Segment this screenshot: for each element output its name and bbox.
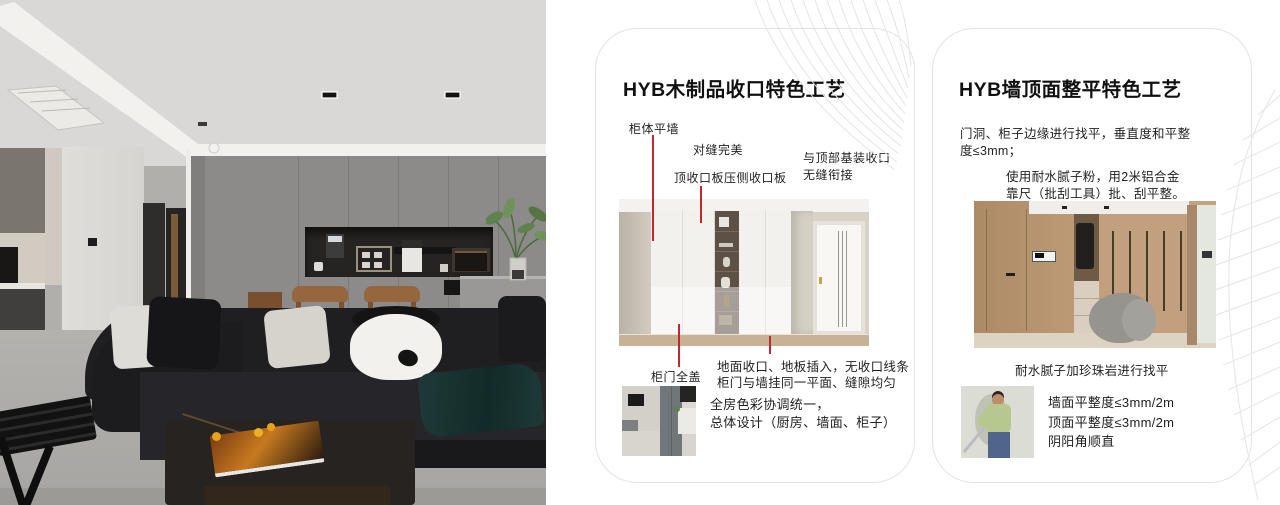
img-right-wall bbox=[791, 211, 813, 334]
callout-top-joint-1: 与顶部基装收口 bbox=[803, 149, 891, 166]
gold-door-handle bbox=[819, 277, 822, 284]
flatness-spec-ceiling: 顶面平整度≤3mm/2m bbox=[1048, 412, 1174, 431]
hall-ceiling bbox=[1029, 201, 1189, 214]
shelf bbox=[715, 231, 739, 232]
callout-top-joint-2: 无缝衔接 bbox=[803, 166, 853, 183]
potted-plant bbox=[486, 198, 546, 288]
doorway-opening bbox=[1197, 205, 1216, 343]
kitchen-base-cabinets bbox=[0, 289, 45, 333]
wall-switch bbox=[88, 238, 97, 246]
ceiling-spot bbox=[1062, 206, 1067, 209]
putty-text-2: 靠尺（批刮工具）批、刮平整。 bbox=[1006, 183, 1185, 202]
drawer-line bbox=[1074, 298, 1099, 299]
door-lever-handle bbox=[1006, 273, 1015, 276]
living-room-photo bbox=[0, 0, 546, 505]
img-left-wall bbox=[619, 212, 651, 334]
ceiling-spot bbox=[1104, 206, 1109, 209]
bean-bag bbox=[1122, 299, 1156, 341]
thumb-hood bbox=[680, 386, 696, 402]
callout-door-cover: 柜门全盖 bbox=[651, 368, 701, 385]
shelf-books bbox=[719, 243, 733, 247]
wall-corner-shadow bbox=[191, 156, 205, 314]
callout-seam: 对缝完美 bbox=[693, 141, 743, 158]
kumquat-fruit bbox=[212, 432, 221, 441]
hidden-door-seam bbox=[986, 209, 987, 331]
kitchen-thumb bbox=[622, 386, 696, 456]
thermostat-screen bbox=[1035, 253, 1044, 258]
rack-cup bbox=[374, 262, 382, 268]
hidden-door-seam bbox=[1026, 209, 1027, 331]
hall-left-wall bbox=[974, 201, 1074, 333]
card-wood-craft: HYB木制品收口特色工艺 柜体平墙 对缝完美 顶收口板压侧收口板 与顶部基装收口… bbox=[595, 28, 915, 483]
hallway-image bbox=[974, 201, 1216, 348]
white-pillow bbox=[263, 305, 331, 369]
page: HYB木制品收口特色工艺 柜体平墙 对缝完美 顶收口板压侧收口板 与顶部基装收口… bbox=[0, 0, 1280, 505]
hanging-clothes bbox=[1076, 223, 1094, 269]
rack-cup bbox=[362, 262, 370, 268]
shelf bbox=[715, 251, 739, 252]
perlite-caption: 耐水腻子加珍珠岩进行找平 bbox=[1015, 360, 1169, 379]
kitchen-wall-column bbox=[45, 148, 62, 285]
dark-pillow bbox=[498, 296, 546, 362]
card-title: HYB木制品收口特色工艺 bbox=[623, 73, 846, 102]
card-wall-craft: HYB墙顶面整平特色工艺 门洞、柜子边缘进行找平，垂直度和平整 度≤3mm； 使… bbox=[932, 28, 1252, 483]
dining-chair bbox=[292, 286, 348, 302]
annotation-line bbox=[652, 135, 654, 241]
ceiling bbox=[0, 0, 546, 166]
shelf-frame bbox=[719, 217, 729, 227]
light-glare bbox=[651, 287, 791, 334]
wardrobe-image bbox=[619, 199, 869, 346]
thumb-tv bbox=[628, 394, 644, 406]
coffee-machine-builtin bbox=[0, 247, 18, 285]
callout-cabinet-wall: 柜体平墙 bbox=[629, 120, 679, 137]
door-groove bbox=[842, 231, 843, 327]
worker-thumb bbox=[961, 386, 1034, 458]
card-title: HYB墙顶面整平特色工艺 bbox=[959, 73, 1182, 102]
black-pillow bbox=[146, 296, 222, 370]
dining-chair bbox=[364, 286, 420, 302]
annotation-line bbox=[700, 186, 702, 223]
thumb-floor bbox=[622, 431, 696, 456]
doorway-fixture bbox=[1202, 251, 1212, 258]
handle-slit bbox=[1163, 231, 1165, 311]
handle-slit bbox=[1180, 231, 1182, 311]
espresso-machine-top bbox=[402, 240, 422, 248]
small-cup bbox=[440, 264, 448, 272]
rack-cup bbox=[374, 252, 382, 258]
annotation-line bbox=[678, 324, 680, 367]
corner-straight-spec: 阴阳角顺直 bbox=[1048, 431, 1115, 450]
cup bbox=[314, 262, 323, 271]
grinder-screen bbox=[328, 236, 342, 242]
thumb-plant bbox=[674, 406, 680, 412]
thumb-cabinet-seam bbox=[671, 386, 672, 456]
flatness-spec-wall: 墙面平整度≤3mm/2m bbox=[1048, 392, 1174, 411]
panda-pillow bbox=[350, 314, 442, 380]
worker-jeans bbox=[988, 432, 1010, 458]
leveling-text-2: 度≤3mm； bbox=[960, 140, 1021, 159]
kumquat-fruit bbox=[254, 428, 263, 437]
kumquat-fruit bbox=[267, 423, 275, 431]
floor-closing-text-2: 柜门与墙挂同一平面、缝隙均匀 bbox=[717, 372, 896, 391]
teal-blanket bbox=[417, 362, 545, 438]
coffee-table-base bbox=[205, 486, 390, 505]
color-unify-text-2: 总体设计（厨房、墙面、柜子） bbox=[710, 412, 896, 431]
thumb-white-cabinet bbox=[678, 408, 696, 434]
wood-floor bbox=[619, 334, 869, 346]
door-groove bbox=[846, 231, 847, 327]
white-door bbox=[816, 224, 862, 332]
speaker-grille bbox=[455, 251, 487, 271]
hall-floor bbox=[974, 333, 1216, 348]
shelf-vase bbox=[723, 257, 730, 267]
doorway-frame bbox=[1187, 205, 1197, 345]
rack-cup bbox=[362, 252, 370, 258]
color-unify-text-1: 全房色彩协调统一， bbox=[710, 394, 830, 413]
kitchen-upper-cabinets bbox=[0, 148, 45, 233]
annotation-line bbox=[769, 336, 771, 354]
cup-rack bbox=[356, 246, 392, 272]
door-groove bbox=[838, 231, 839, 327]
callout-top-board: 顶收口板压侧收口板 bbox=[674, 169, 787, 186]
shelf bbox=[715, 271, 739, 272]
handle-slit bbox=[1146, 231, 1148, 311]
